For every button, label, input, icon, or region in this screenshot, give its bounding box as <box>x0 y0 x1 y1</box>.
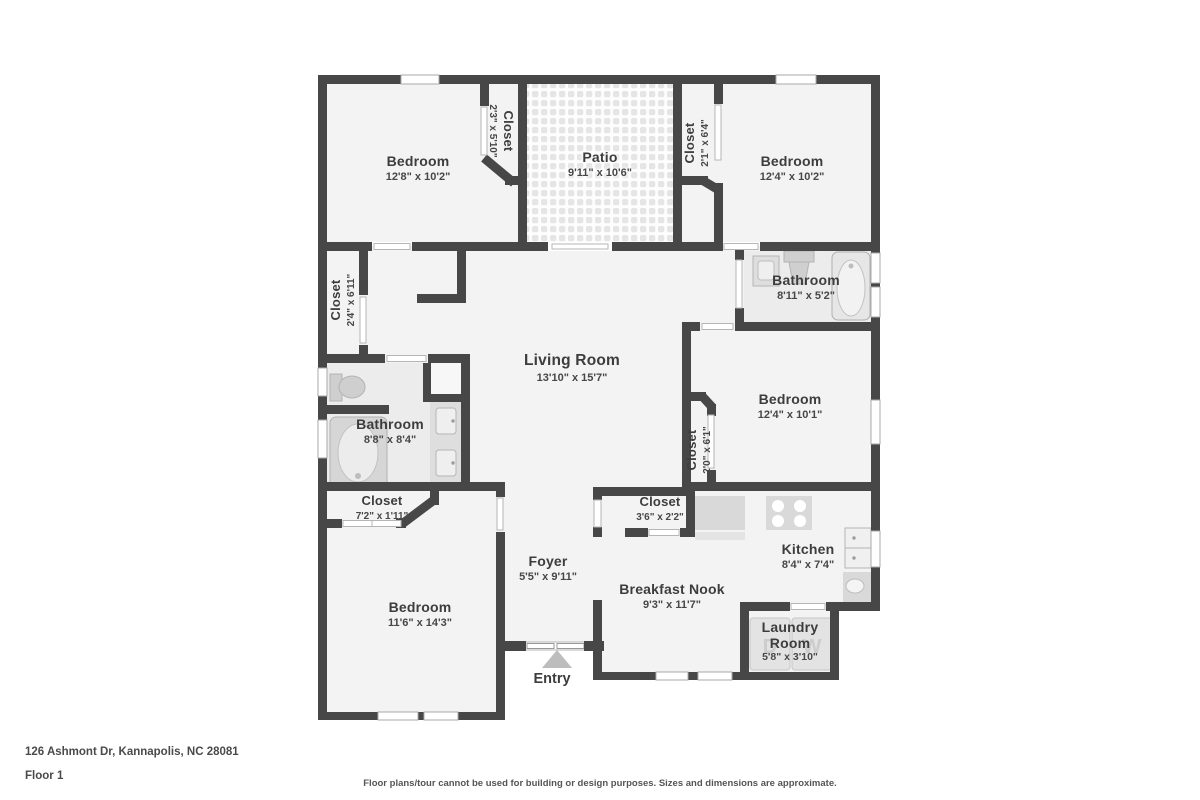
room-label-living-room: Living Room 13'10" x 15'7" <box>524 351 620 385</box>
entry-door <box>517 641 593 651</box>
room-label-kitchen: Kitchen 8'4" x 7'4" <box>782 540 835 572</box>
room-label-breakfast-nook: Breakfast Nook 9'3" x 11'7" <box>619 580 725 612</box>
room-label-laundry: Laundry Room 5'8" x 3'10" <box>742 619 838 663</box>
property-address: 126 Ashmont Dr, Kannapolis, NC 28081 <box>25 746 239 758</box>
room-label-bedroom-bottom-left: Bedroom 11'6" x 14'3" <box>388 598 452 630</box>
room-label-bathroom-left: Bathroom 8'8" x 8'4" <box>356 415 424 447</box>
room-label-closet-hall-left: Closet 2'4" x 6'11" <box>328 274 358 327</box>
floorplan-page: D W <box>0 0 1200 800</box>
room-label-bathroom-right: Bathroom 8'11" x 5'2" <box>772 271 840 303</box>
room-label-patio: Patio 9'11" x 10'6" <box>568 148 632 180</box>
counter-icon <box>695 496 745 530</box>
floorplan-drawing: D W <box>0 0 1200 800</box>
room-label-bedroom-middle-right: Bedroom 12'4" x 10'1" <box>758 390 823 422</box>
room-label-closet-hallway: Closet 7'2" x 1'11" <box>356 493 409 523</box>
room-label-foyer: Foyer 5'5" x 9'11" <box>519 552 577 584</box>
room-label-closet-top-left: Closet 2'3" x 5'10" <box>486 104 516 157</box>
room-label-closet-top-right: Closet 2'1" x 6'4" <box>682 119 712 167</box>
toilet-tank-icon <box>784 251 814 262</box>
room-label-closet-bedroom-right: Closet 2'0" x 6'1" <box>684 426 714 474</box>
room-label-closet-foyer: Closet 3'6" x 2'2" <box>636 494 684 524</box>
entry-arrow-icon <box>542 650 572 668</box>
disclaimer-text: Floor plans/tour cannot be used for buil… <box>0 778 1200 789</box>
room-label-bedroom-top-left: Bedroom 12'8" x 10'2" <box>386 152 451 184</box>
toilet-bowl-icon <box>339 376 365 398</box>
stove-icon <box>766 496 812 530</box>
entry-label: Entry <box>533 671 570 687</box>
room-label-bedroom-top-right: Bedroom 12'4" x 10'2" <box>760 152 825 184</box>
